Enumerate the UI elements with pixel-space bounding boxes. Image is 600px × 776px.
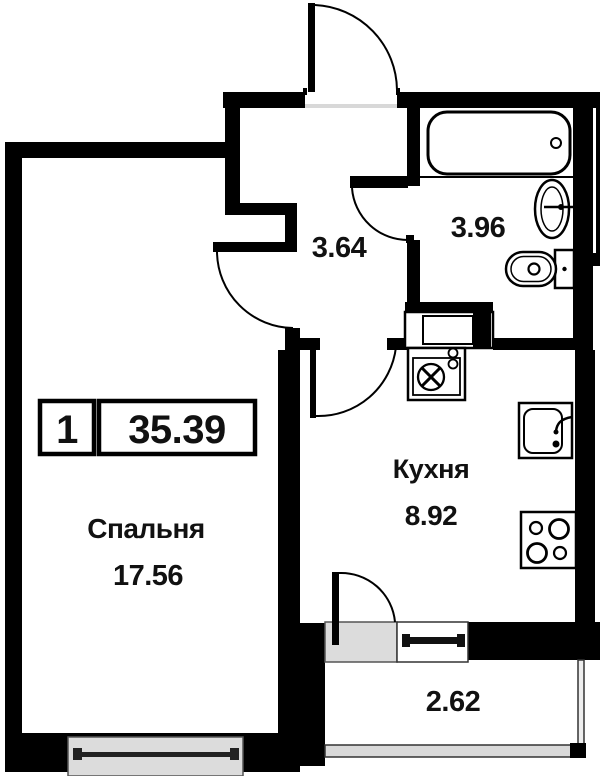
- balcony-window-cap-left: [402, 634, 410, 647]
- bedroom-door-leaf: [213, 242, 297, 252]
- balcony-door-leaf: [332, 572, 339, 645]
- balcony-edge-right: [578, 660, 584, 747]
- kitchen-door-leaf: [310, 340, 316, 418]
- kitchen-sink-tap-end: [554, 430, 559, 435]
- ventilation-box-icon: [408, 348, 465, 400]
- kitchen-sink-icon: [519, 403, 572, 458]
- bathtub-icon: [420, 112, 573, 177]
- wall-right-notch: [588, 253, 600, 266]
- stove-burner-3: [528, 544, 547, 563]
- bathroom-door-hinge: [406, 235, 414, 243]
- entrance-threshold: [305, 104, 397, 108]
- kitchen-area: 8.92: [405, 500, 458, 531]
- bathtub-drain: [551, 138, 561, 148]
- balcony-railing-bar: [325, 745, 578, 757]
- balcony-window-cap-right: [457, 634, 465, 647]
- stove-burner-1: [530, 522, 542, 534]
- balcony-railing-cap: [570, 743, 586, 758]
- wall-left: [5, 142, 22, 772]
- badge-total-area: 35.39: [128, 408, 226, 452]
- toilet-icon: [506, 250, 574, 288]
- stove-icon: [521, 512, 576, 568]
- wall-kitchen-top-c: [493, 338, 573, 350]
- wall-corner-column: [292, 623, 325, 766]
- stove-burner-2: [550, 520, 569, 539]
- bedroom-window-cap-left: [73, 748, 82, 760]
- bathtub-body: [428, 112, 570, 174]
- wall-bottom-right-band: [468, 622, 600, 660]
- bedroom-area: 17.56: [113, 560, 183, 592]
- entrance-door-leaf: [308, 3, 315, 92]
- badge-room-count: 1: [56, 408, 78, 452]
- apartment-badge: 1 35.39: [40, 401, 255, 454]
- kitchen-sink-drain: [553, 441, 560, 448]
- toilet-tank-dot: [562, 267, 566, 271]
- floor-plan: 1 35.39 Спальня 17.56 Кухня 8.92 3.64 3.…: [0, 0, 600, 776]
- bathroom-area: 3.96: [451, 212, 506, 244]
- shaft-closet: [405, 312, 493, 348]
- vent-dot-1: [449, 349, 458, 358]
- bedroom-label: Спальня: [87, 513, 204, 544]
- kitchen-label: Кухня: [393, 454, 469, 484]
- wall-right-kitchen: [575, 350, 595, 623]
- wall-top-right: [397, 92, 600, 108]
- wall-bathroom-left-lower: [407, 240, 420, 302]
- wall-right-sliver: [596, 108, 600, 260]
- wall-shaft-top: [405, 302, 493, 312]
- wall-bedroom-top: [5, 142, 240, 158]
- balcony-window: [397, 622, 468, 662]
- floor-plan-drawing: 1 35.39 Спальня 17.56 Кухня 8.92 3.64 3.…: [0, 0, 600, 776]
- washbasin-tap-dot: [558, 204, 564, 210]
- wall-kitchen-top-a: [297, 338, 320, 350]
- hallway-area: 3.64: [312, 232, 367, 264]
- bedroom-window-glazing: [80, 752, 232, 757]
- bathroom-door-leaf: [350, 176, 408, 188]
- bedroom-window: [68, 737, 243, 776]
- balcony-window-glazing: [408, 637, 459, 644]
- vent-dot-2: [449, 360, 458, 369]
- toilet-flush: [529, 264, 540, 275]
- shaft-inner: [423, 316, 473, 344]
- shaft-duct: [473, 312, 491, 348]
- entrance-jamb-left: [303, 88, 307, 95]
- balcony-area: 2.62: [426, 686, 480, 718]
- bedroom-window-cap-right: [230, 748, 239, 760]
- stove-burner-4: [554, 547, 566, 559]
- wall-bathroom-left-upper: [407, 107, 420, 186]
- wall-right-bathroom: [573, 94, 593, 350]
